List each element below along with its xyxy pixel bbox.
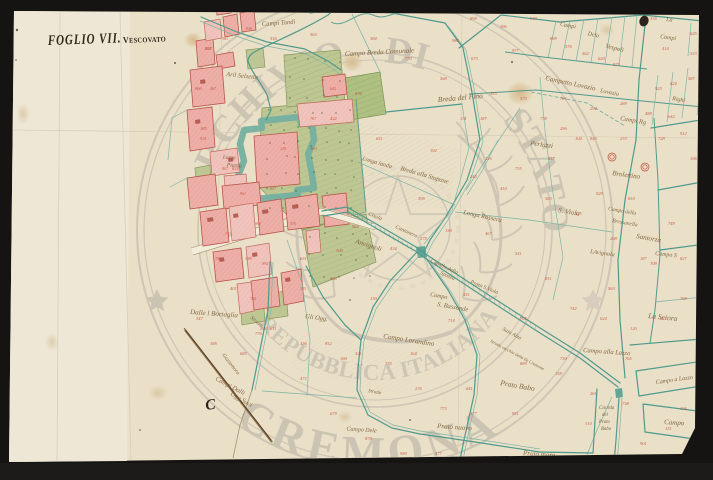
svg-text:852: 852 bbox=[325, 341, 333, 346]
svg-text:894: 894 bbox=[262, 261, 268, 266]
svg-text:770: 770 bbox=[405, 56, 413, 61]
svg-text:401: 401 bbox=[230, 286, 237, 291]
svg-text:742: 742 bbox=[570, 306, 578, 311]
svg-text:576: 576 bbox=[290, 221, 296, 226]
svg-text:714: 714 bbox=[448, 318, 456, 323]
svg-text:949: 949 bbox=[530, 16, 538, 21]
svg-text:876: 876 bbox=[355, 91, 363, 96]
svg-text:679: 679 bbox=[330, 411, 338, 416]
svg-text:730: 730 bbox=[560, 356, 568, 361]
svg-text:467: 467 bbox=[485, 231, 493, 236]
svg-text:Babo: Babo bbox=[601, 427, 612, 432]
svg-text:807: 807 bbox=[222, 166, 229, 171]
svg-text:130: 130 bbox=[370, 296, 378, 301]
svg-text:960: 960 bbox=[195, 86, 203, 91]
svg-text:192: 192 bbox=[430, 148, 438, 153]
svg-text:769: 769 bbox=[680, 296, 688, 301]
svg-text:160: 160 bbox=[340, 356, 348, 361]
svg-text:960: 960 bbox=[255, 221, 261, 226]
svg-text:857: 857 bbox=[270, 186, 277, 191]
svg-text:296: 296 bbox=[560, 126, 568, 131]
svg-text:673: 673 bbox=[471, 56, 479, 61]
svg-text:326: 326 bbox=[485, 156, 493, 161]
svg-text:335: 335 bbox=[650, 16, 658, 21]
svg-text:568: 568 bbox=[440, 76, 448, 81]
svg-text:414: 414 bbox=[662, 46, 670, 51]
svg-text:196: 196 bbox=[690, 156, 698, 161]
svg-text:115: 115 bbox=[665, 426, 672, 431]
svg-text:477: 477 bbox=[470, 411, 478, 416]
svg-text:975: 975 bbox=[613, 62, 621, 67]
svg-text:164: 164 bbox=[410, 351, 418, 356]
svg-text:810: 810 bbox=[628, 196, 636, 201]
svg-text:641: 641 bbox=[466, 386, 473, 391]
svg-text:923: 923 bbox=[655, 86, 663, 91]
svg-text:896: 896 bbox=[330, 276, 338, 281]
svg-text:355: 355 bbox=[300, 286, 306, 291]
svg-text:Cisorda: Cisorda bbox=[599, 406, 615, 411]
svg-text:130: 130 bbox=[445, 228, 453, 233]
svg-text:898: 898 bbox=[470, 16, 478, 21]
svg-text:Prato: Prato bbox=[598, 420, 611, 425]
svg-text:563: 563 bbox=[310, 32, 318, 37]
svg-text:396: 396 bbox=[500, 24, 508, 29]
svg-text:233: 233 bbox=[620, 136, 628, 141]
svg-text:624: 624 bbox=[670, 81, 678, 86]
svg-text:625: 625 bbox=[690, 31, 698, 36]
svg-text:889: 889 bbox=[520, 361, 528, 366]
svg-text:136: 136 bbox=[680, 406, 688, 411]
svg-text:410: 410 bbox=[500, 186, 508, 191]
svg-text:300: 300 bbox=[336, 248, 344, 253]
svg-text:737: 737 bbox=[205, 46, 212, 51]
svg-text:276: 276 bbox=[415, 386, 423, 391]
svg-text:373: 373 bbox=[520, 96, 528, 101]
svg-text:551: 551 bbox=[463, 292, 470, 297]
svg-text:467: 467 bbox=[210, 86, 217, 91]
svg-text:899: 899 bbox=[550, 36, 558, 41]
svg-text:245: 245 bbox=[470, 174, 478, 179]
svg-text:705: 705 bbox=[520, 316, 528, 321]
svg-text:562: 562 bbox=[582, 51, 590, 56]
svg-text:388: 388 bbox=[210, 341, 218, 346]
svg-text:531: 531 bbox=[660, 316, 667, 321]
svg-text:642: 642 bbox=[668, 114, 676, 119]
svg-text:395: 395 bbox=[418, 196, 426, 201]
svg-text:563: 563 bbox=[608, 286, 616, 291]
svg-text:651: 651 bbox=[376, 136, 383, 141]
svg-text:261: 261 bbox=[590, 391, 597, 396]
svg-text:384: 384 bbox=[370, 36, 378, 41]
svg-text:685: 685 bbox=[240, 351, 248, 356]
svg-text:962: 962 bbox=[352, 224, 360, 229]
svg-text:471: 471 bbox=[300, 376, 307, 381]
svg-text:624: 624 bbox=[600, 316, 608, 321]
svg-text:929: 929 bbox=[596, 191, 604, 196]
svg-text:153: 153 bbox=[225, 231, 231, 236]
svg-text:912: 912 bbox=[680, 131, 688, 136]
svg-text:187: 187 bbox=[640, 256, 648, 261]
svg-text:749: 749 bbox=[668, 221, 676, 226]
svg-text:735: 735 bbox=[515, 166, 523, 171]
svg-text:185: 185 bbox=[200, 126, 208, 131]
svg-text:776: 776 bbox=[255, 331, 263, 336]
svg-text:339: 339 bbox=[245, 256, 253, 261]
svg-text:778: 778 bbox=[540, 116, 548, 121]
svg-text:La: La bbox=[665, 17, 673, 24]
svg-text:961: 961 bbox=[240, 191, 246, 196]
svg-text:728: 728 bbox=[658, 136, 666, 141]
svg-text:187: 187 bbox=[480, 116, 488, 121]
svg-text:477: 477 bbox=[435, 451, 443, 456]
svg-text:120: 120 bbox=[630, 326, 638, 331]
svg-text:208: 208 bbox=[610, 236, 618, 241]
svg-text:764: 764 bbox=[250, 296, 256, 301]
svg-text:827: 827 bbox=[680, 256, 688, 261]
svg-text:576: 576 bbox=[565, 44, 573, 49]
svg-text:859: 859 bbox=[246, 26, 252, 31]
svg-text:631: 631 bbox=[300, 256, 307, 261]
svg-text:824: 824 bbox=[232, 166, 240, 171]
svg-text:555: 555 bbox=[490, 91, 498, 96]
svg-text:977: 977 bbox=[512, 48, 520, 53]
svg-text:575: 575 bbox=[420, 236, 428, 241]
svg-text:294: 294 bbox=[590, 106, 598, 111]
svg-text:735: 735 bbox=[385, 361, 393, 366]
svg-text:642: 642 bbox=[330, 86, 336, 91]
svg-text:765: 765 bbox=[625, 356, 633, 361]
svg-text:951: 951 bbox=[512, 411, 519, 416]
svg-text:767: 767 bbox=[310, 116, 317, 121]
svg-text:310: 310 bbox=[585, 421, 593, 426]
svg-text:587: 587 bbox=[688, 76, 696, 81]
svg-text:843: 843 bbox=[590, 136, 598, 141]
svg-text:321: 321 bbox=[355, 351, 362, 356]
svg-text:620: 620 bbox=[598, 56, 606, 61]
svg-text:del: del bbox=[602, 413, 609, 418]
svg-text:533: 533 bbox=[690, 51, 698, 56]
svg-text:901: 901 bbox=[640, 441, 647, 446]
svg-text:701: 701 bbox=[560, 96, 567, 101]
svg-text:557: 557 bbox=[548, 156, 556, 161]
svg-text:434: 434 bbox=[390, 246, 398, 251]
svg-text:129: 129 bbox=[280, 146, 286, 151]
svg-text:361: 361 bbox=[222, 36, 228, 41]
svg-text:104: 104 bbox=[575, 136, 583, 141]
svg-text:114: 114 bbox=[460, 116, 467, 121]
svg-text:980: 980 bbox=[400, 451, 408, 456]
svg-text:565: 565 bbox=[545, 196, 553, 201]
svg-text:878: 878 bbox=[365, 436, 373, 441]
svg-text:986: 986 bbox=[452, 38, 460, 43]
svg-text:125: 125 bbox=[575, 211, 583, 216]
svg-text:FOGLIO VII.: FOGLIO VII. bbox=[47, 30, 122, 48]
svg-text:709: 709 bbox=[650, 261, 658, 266]
svg-text:158: 158 bbox=[555, 371, 563, 376]
svg-text:516: 516 bbox=[270, 36, 278, 41]
svg-text:289: 289 bbox=[620, 101, 628, 106]
svg-text:773: 773 bbox=[440, 406, 448, 411]
svg-text:422: 422 bbox=[330, 116, 338, 121]
svg-text:738: 738 bbox=[622, 401, 630, 406]
svg-text:360: 360 bbox=[310, 146, 318, 151]
svg-text:611: 611 bbox=[270, 326, 276, 331]
svg-text:136: 136 bbox=[300, 341, 308, 346]
svg-text:488: 488 bbox=[645, 111, 653, 116]
svg-text:347: 347 bbox=[196, 316, 204, 321]
svg-text:541: 541 bbox=[515, 251, 522, 256]
svg-text:851: 851 bbox=[545, 276, 552, 281]
svg-text:914: 914 bbox=[200, 136, 206, 141]
